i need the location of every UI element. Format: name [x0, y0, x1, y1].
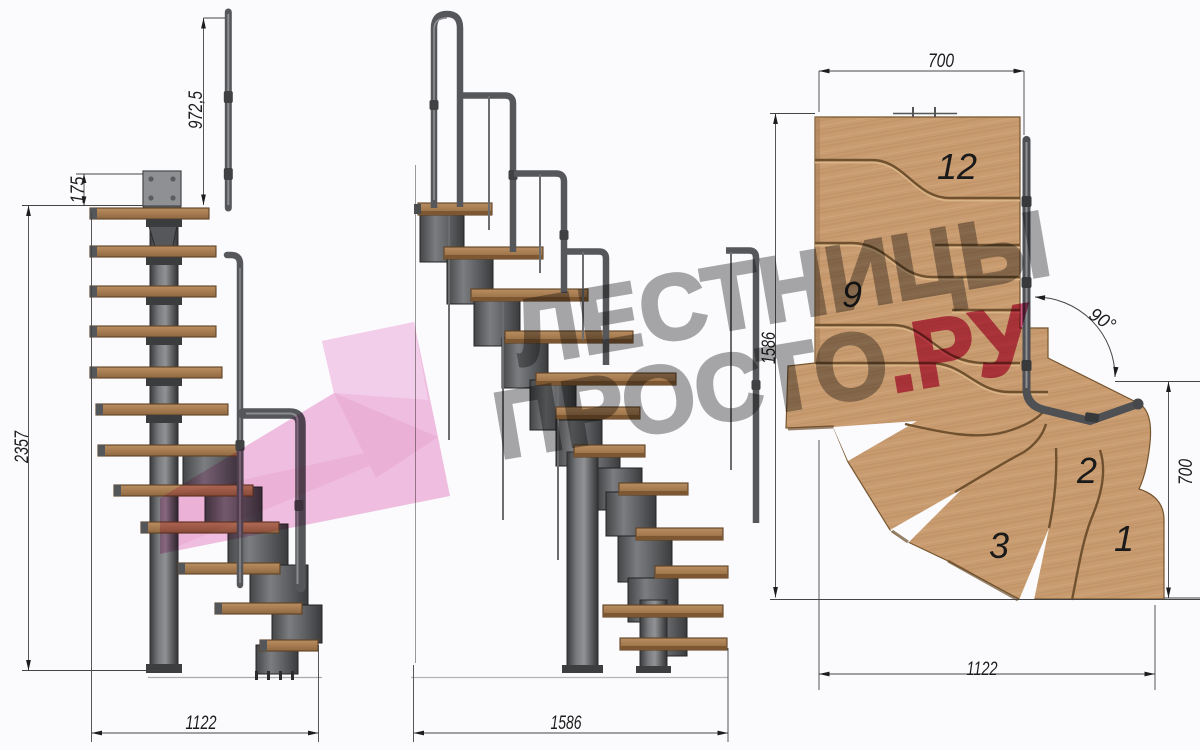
svg-text:2357: 2357: [12, 430, 33, 464]
svg-text:3: 3: [989, 525, 1009, 566]
svg-text:2: 2: [1076, 450, 1097, 491]
svg-text:1586: 1586: [551, 713, 582, 734]
svg-text:1: 1: [1114, 518, 1134, 559]
svg-text:1122: 1122: [967, 659, 998, 680]
svg-text:700: 700: [928, 51, 954, 72]
svg-text:1122: 1122: [186, 713, 217, 734]
svg-text:12: 12: [937, 146, 977, 187]
svg-text:175: 175: [68, 176, 89, 203]
svg-text:700: 700: [1176, 459, 1197, 485]
svg-text:972,5: 972,5: [186, 91, 207, 129]
